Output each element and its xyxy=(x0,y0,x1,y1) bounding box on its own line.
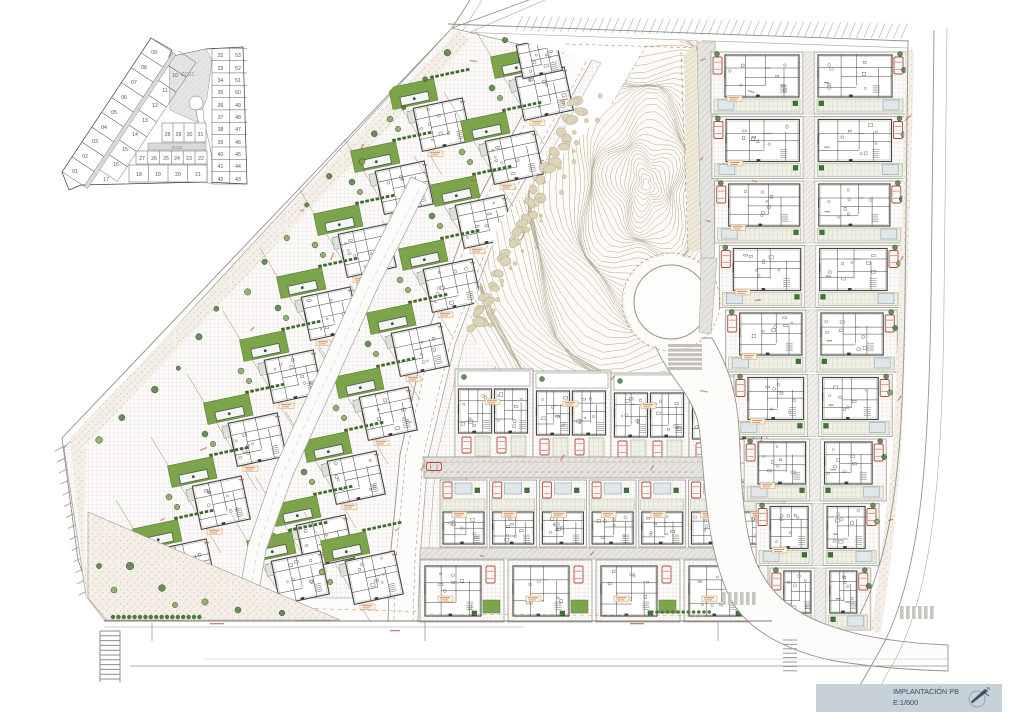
svg-text:43: 43 xyxy=(235,177,241,183)
svg-text:05: 05 xyxy=(111,110,117,116)
svg-text:37: 37 xyxy=(218,115,224,121)
svg-text:34: 34 xyxy=(218,78,224,84)
svg-text:29: 29 xyxy=(176,132,182,138)
svg-text:44: 44 xyxy=(235,164,241,170)
svg-text:33: 33 xyxy=(218,66,224,72)
svg-text:46: 46 xyxy=(235,140,241,146)
svg-text:02: 02 xyxy=(82,154,88,160)
svg-text:40: 40 xyxy=(218,152,224,158)
svg-text:32: 32 xyxy=(218,53,224,59)
svg-text:28: 28 xyxy=(165,132,171,138)
svg-text:51: 51 xyxy=(235,78,241,84)
svg-text:49: 49 xyxy=(235,103,241,109)
svg-text:16: 16 xyxy=(113,162,119,168)
svg-text:09: 09 xyxy=(151,50,157,56)
svg-text:26: 26 xyxy=(151,156,157,162)
svg-text:14: 14 xyxy=(132,132,138,138)
svg-text:N: N xyxy=(987,686,990,691)
svg-text:E:1/600: E:1/600 xyxy=(893,698,918,707)
svg-text:11: 11 xyxy=(162,88,167,94)
svg-text:39: 39 xyxy=(218,140,224,146)
svg-text:35: 35 xyxy=(218,90,224,96)
svg-text:15: 15 xyxy=(122,147,128,153)
svg-text:12: 12 xyxy=(152,103,158,109)
svg-text:ZC02: ZC02 xyxy=(172,145,183,150)
svg-text:27: 27 xyxy=(139,156,145,162)
svg-text:53: 53 xyxy=(235,53,241,59)
svg-text:01: 01 xyxy=(72,169,78,175)
svg-text:23: 23 xyxy=(186,156,192,162)
svg-text:25: 25 xyxy=(163,156,169,162)
svg-text:42: 42 xyxy=(218,177,224,183)
svg-text:47: 47 xyxy=(235,127,241,133)
svg-text:50: 50 xyxy=(235,90,241,96)
svg-text:03: 03 xyxy=(92,139,98,145)
svg-text:38: 38 xyxy=(218,127,224,133)
svg-text:31: 31 xyxy=(198,132,204,138)
svg-text:08: 08 xyxy=(141,65,147,71)
svg-text:21: 21 xyxy=(195,172,201,178)
svg-text:22: 22 xyxy=(198,156,204,162)
svg-text:19: 19 xyxy=(155,172,161,178)
svg-text:52: 52 xyxy=(235,66,241,72)
svg-text:36: 36 xyxy=(218,103,224,109)
svg-text:04: 04 xyxy=(101,125,107,131)
svg-text:13: 13 xyxy=(142,118,148,124)
svg-text:45: 45 xyxy=(235,152,241,158)
svg-text:10: 10 xyxy=(172,73,178,79)
svg-text:06: 06 xyxy=(121,95,127,101)
svg-text:24: 24 xyxy=(174,156,180,162)
svg-text:18: 18 xyxy=(136,172,142,178)
svg-text:41: 41 xyxy=(218,164,224,170)
svg-text:20: 20 xyxy=(175,172,181,178)
svg-text:IMPLANTACIÓN PB: IMPLANTACIÓN PB xyxy=(893,687,959,696)
svg-text:17: 17 xyxy=(103,177,109,183)
svg-text:48: 48 xyxy=(235,115,241,121)
svg-text:30: 30 xyxy=(187,132,193,138)
svg-text:07: 07 xyxy=(131,80,137,86)
